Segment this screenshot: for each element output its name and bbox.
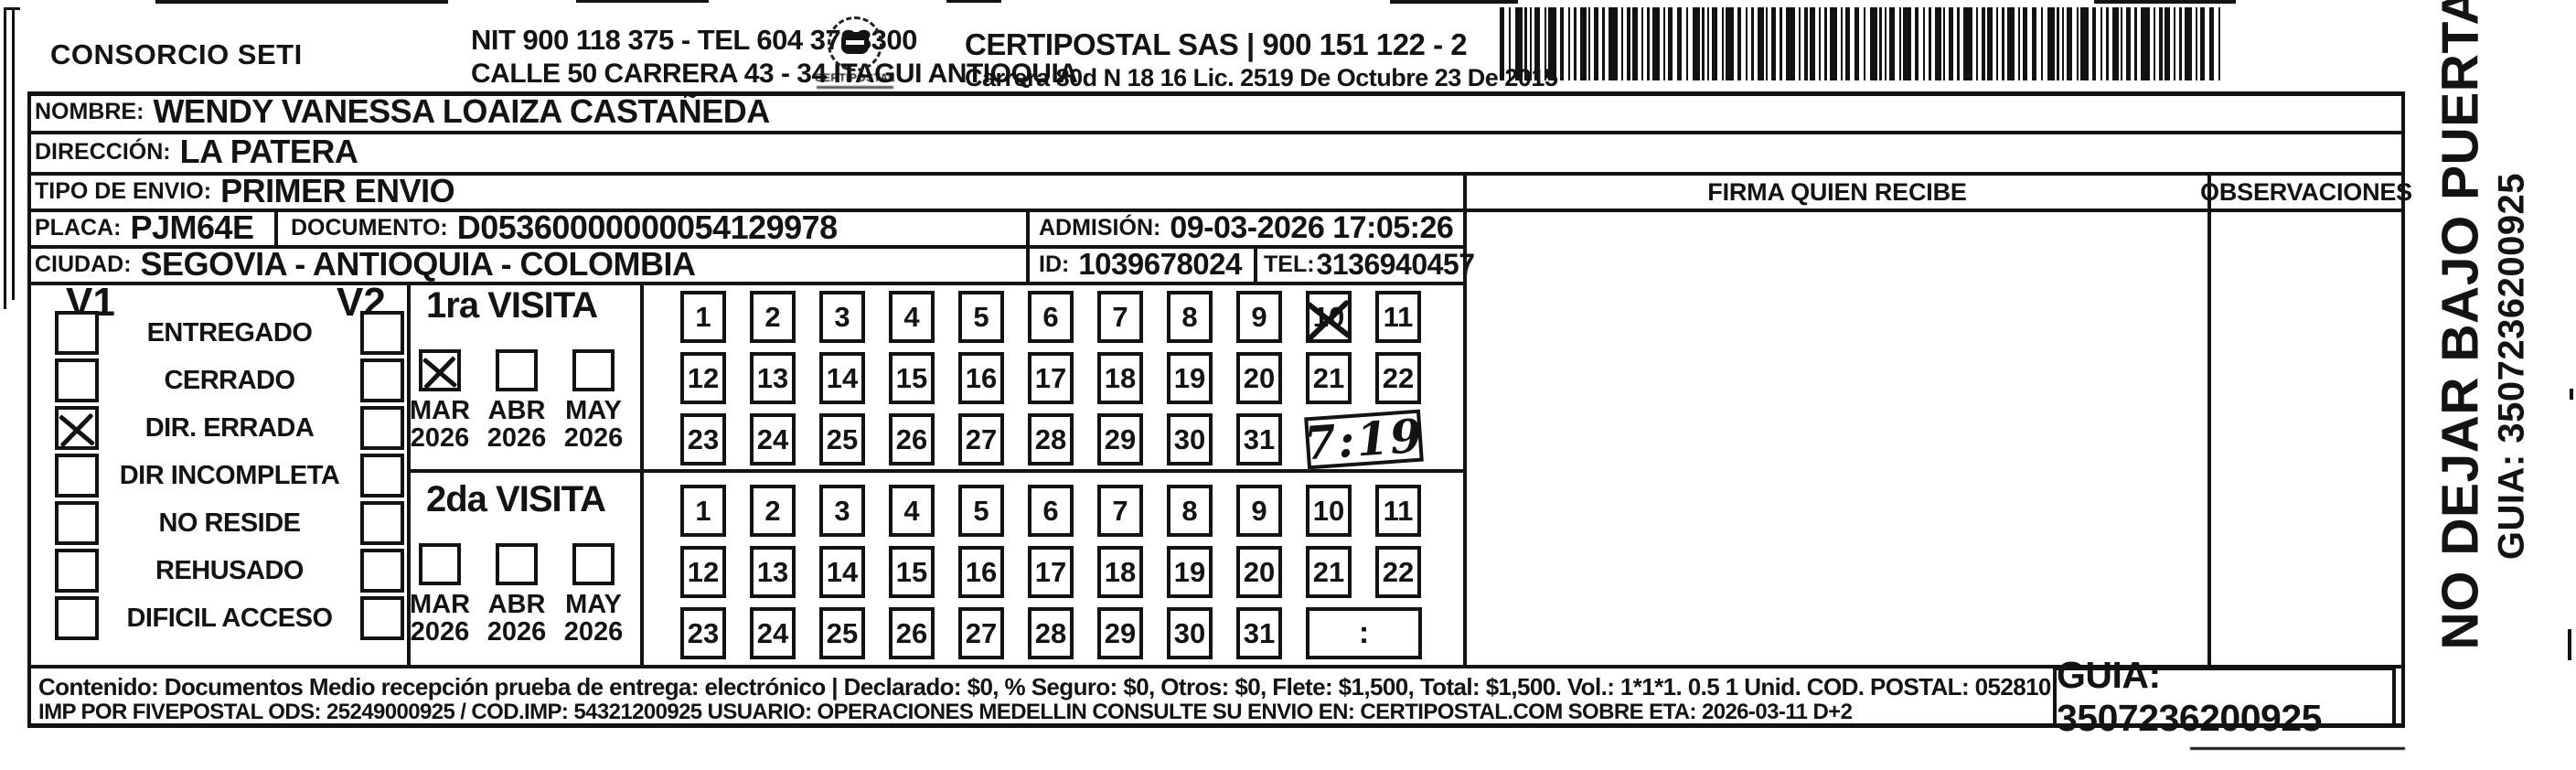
day-cell-1[interactable]: 1 xyxy=(680,485,726,537)
certipostal-logo-icon xyxy=(828,16,882,71)
month-year: 2026 xyxy=(487,424,547,453)
status-label: CERRADO xyxy=(99,366,360,396)
observaciones-column-header: OBSERVACIONES xyxy=(2211,176,2401,209)
day-cell-24[interactable]: 24 xyxy=(750,607,796,659)
day-cell-2[interactable]: 2 xyxy=(750,485,796,537)
day-cell-9[interactable]: 9 xyxy=(1236,291,1282,343)
day-row: 1234567891011 xyxy=(680,291,1422,343)
id-label: ID: xyxy=(1039,251,1069,278)
day-cell-3[interactable]: 3 xyxy=(819,291,865,343)
day-cell-25[interactable]: 25 xyxy=(819,413,865,465)
v2-checkbox[interactable] xyxy=(360,406,404,450)
day-cell-30[interactable]: 30 xyxy=(1167,607,1213,659)
day-cell-26[interactable]: 26 xyxy=(889,607,935,659)
day-cell-17[interactable]: 17 xyxy=(1028,352,1074,404)
divider xyxy=(27,131,2405,134)
day-cell-15[interactable]: 15 xyxy=(889,352,935,404)
scan-artifact xyxy=(155,0,448,4)
logo-caption-smudge xyxy=(817,86,893,89)
documento-cell: DOCUMENTO: D05360000000054129978 xyxy=(291,210,838,245)
month-checkbox[interactable] xyxy=(572,543,615,585)
visit-time-cell[interactable]: : xyxy=(1306,607,1422,659)
day-cell-31[interactable]: 31 xyxy=(1236,413,1282,465)
month-checkbox[interactable] xyxy=(496,543,538,585)
day-cell-21[interactable]: 21 xyxy=(1306,352,1352,404)
footer-content-line: Contenido: Documentos Medio recepción pr… xyxy=(38,673,2051,701)
v2-checkbox[interactable] xyxy=(360,454,404,497)
v2-checkbox[interactable] xyxy=(360,596,404,640)
divider xyxy=(27,665,2405,668)
visit2-day-grid: 1234567891011121314151617181920212223242… xyxy=(680,485,1422,659)
day-cell-10[interactable]: 10 xyxy=(1306,291,1352,343)
day-row: 1213141516171819202122 xyxy=(680,546,1422,598)
day-cell-13[interactable]: 13 xyxy=(750,546,796,598)
divider xyxy=(640,282,644,668)
day-cell-5[interactable]: 5 xyxy=(958,291,1004,343)
day-cell-13[interactable]: 13 xyxy=(750,352,796,404)
divider xyxy=(27,91,31,728)
v1-checkbox[interactable] xyxy=(55,501,99,545)
id-value: 1039678024 xyxy=(1078,247,1242,282)
day-cell-12[interactable]: 12 xyxy=(680,352,726,404)
firma-column-header: FIRMA QUIEN RECIBE xyxy=(1467,176,2207,209)
placa-cell: PLACA: PJM64E xyxy=(35,210,254,245)
v1-checkbox[interactable] xyxy=(55,358,99,402)
month-checkbox[interactable] xyxy=(419,543,461,585)
day-cell-7[interactable]: 7 xyxy=(1097,485,1143,537)
scan-artifact xyxy=(2094,0,2236,4)
divider xyxy=(1026,209,1030,285)
day-cell-15[interactable]: 15 xyxy=(889,546,935,598)
divider xyxy=(1254,245,1257,285)
divider xyxy=(274,209,278,249)
ciudad-label: CIUDAD: xyxy=(35,251,132,278)
guia-number-box: GUIA: 3507236200925 xyxy=(2053,667,2396,727)
day-cell-19[interactable]: 19 xyxy=(1167,352,1213,404)
day-cell-23[interactable]: 23 xyxy=(680,607,726,659)
day-cell-21[interactable]: 21 xyxy=(1306,546,1352,598)
day-cell-31[interactable]: 31 xyxy=(1236,607,1282,659)
status-row: REHUSADO xyxy=(55,549,404,593)
status-row: DIFICIL ACCESO xyxy=(55,596,404,640)
v2-checkbox[interactable] xyxy=(360,501,404,545)
day-cell-7[interactable]: 7 xyxy=(1097,291,1143,343)
month-label: MAY xyxy=(565,397,622,424)
firma-signature-area[interactable] xyxy=(1467,212,2207,665)
day-cell-25[interactable]: 25 xyxy=(819,607,865,659)
status-row: DIR INCOMPLETA xyxy=(55,454,404,497)
status-label: DIR INCOMPLETA xyxy=(99,461,360,491)
month-year: 2026 xyxy=(564,424,624,453)
month-option: MAR2026 xyxy=(401,349,478,453)
status-row: NO RESIDE xyxy=(55,501,404,545)
brand-address-line: Carrera 80d N 18 16 Lic. 2519 De Octubre… xyxy=(965,64,1557,92)
day-cell-30[interactable]: 30 xyxy=(1167,413,1213,465)
day-cell-22[interactable]: 22 xyxy=(1375,546,1421,598)
day-cell-11[interactable]: 11 xyxy=(1375,291,1421,343)
side-guia-number: GUIA: 3507236200925 xyxy=(2489,83,2535,650)
direccion-label: DIRECCIÓN: xyxy=(35,139,171,166)
day-cell-8[interactable]: 8 xyxy=(1167,485,1213,537)
month-label: MAR xyxy=(410,397,470,424)
admision-cell: ADMISIÓN: 09-03-2026 17:05:26 xyxy=(1039,210,1453,245)
scan-artifact xyxy=(4,7,6,309)
status-label: NO RESIDE xyxy=(99,508,360,539)
placa-label: PLACA: xyxy=(35,215,121,241)
day-cell-28[interactable]: 28 xyxy=(1028,413,1074,465)
scan-artifact xyxy=(576,0,709,3)
day-cell-8[interactable]: 8 xyxy=(1167,291,1213,343)
observaciones-area[interactable] xyxy=(2211,212,2401,665)
day-cell-12[interactable]: 12 xyxy=(680,546,726,598)
month-checkbox[interactable] xyxy=(496,349,538,391)
v2-checkbox[interactable] xyxy=(360,311,404,355)
day-cell-9[interactable]: 9 xyxy=(1236,485,1282,537)
day-cell-16[interactable]: 16 xyxy=(958,352,1004,404)
day-row: 232425262728293031: xyxy=(680,607,1422,659)
day-cell-3[interactable]: 3 xyxy=(819,485,865,537)
day-cell-29[interactable]: 29 xyxy=(1097,607,1143,659)
day-row: 1213141516171819202122 xyxy=(680,352,1422,404)
day-cell-18[interactable]: 18 xyxy=(1097,546,1143,598)
month-checkbox[interactable] xyxy=(572,349,615,391)
scan-artifact xyxy=(12,7,15,300)
day-cell-16[interactable]: 16 xyxy=(958,546,1004,598)
status-label: REHUSADO xyxy=(99,556,360,586)
documento-label: DOCUMENTO: xyxy=(291,215,448,241)
day-row: 1234567891011 xyxy=(680,485,1422,537)
tipo-envio-value: PRIMER ENVIO xyxy=(220,172,454,210)
v1-checkbox[interactable] xyxy=(55,596,99,640)
day-cell-29[interactable]: 29 xyxy=(1097,413,1143,465)
v1-checkbox[interactable] xyxy=(55,311,99,355)
visit-time-cell[interactable]: 7:19 xyxy=(1304,410,1424,470)
day-cell-2[interactable]: 2 xyxy=(750,291,796,343)
day-cell-17[interactable]: 17 xyxy=(1028,546,1074,598)
scan-artifact xyxy=(2570,389,2573,400)
month-option: MAY2026 xyxy=(555,543,632,647)
day-cell-11[interactable]: 11 xyxy=(1375,485,1421,537)
v2-checkbox[interactable] xyxy=(360,549,404,593)
scan-artifact xyxy=(2190,747,2405,750)
v1-checkbox[interactable] xyxy=(55,549,99,593)
scan-artifact xyxy=(2568,629,2571,660)
day-cell-22[interactable]: 22 xyxy=(1375,352,1421,404)
month-label: ABR xyxy=(488,397,546,424)
direccion-value: LA PATERA xyxy=(180,133,358,171)
month-option: ABR2026 xyxy=(478,349,555,453)
day-cell-18[interactable]: 18 xyxy=(1097,352,1143,404)
direccion-row: DIRECCIÓN: LA PATERA xyxy=(35,134,358,170)
day-row: 2324252627282930317:19 xyxy=(680,413,1422,465)
month-year: 2026 xyxy=(487,618,547,647)
status-panel: ENTREGADOCERRADODIR. ERRADADIR INCOMPLET… xyxy=(55,311,404,640)
barcode xyxy=(1500,7,2239,80)
day-cell-6[interactable]: 6 xyxy=(1028,485,1074,537)
delivery-guide-scan: CONSORCIO SETI NIT 900 118 375 - TEL 604… xyxy=(0,0,2576,770)
day-cell-20[interactable]: 20 xyxy=(1236,546,1282,598)
consignor-name: CONSORCIO SETI xyxy=(50,38,303,71)
month-year: 2026 xyxy=(564,618,624,647)
ciudad-cell: CIUDAD: SEGOVIA - ANTIOQUIA - COLOMBIA xyxy=(35,247,696,282)
ciudad-value: SEGOVIA - ANTIOQUIA - COLOMBIA xyxy=(141,245,696,283)
day-cell-23[interactable]: 23 xyxy=(680,413,726,465)
visit2-title: 2da VISITA xyxy=(426,479,605,520)
placa-value: PJM64E xyxy=(130,209,253,247)
tipo-envio-row: TIPO DE ENVIO: PRIMER ENVIO xyxy=(35,174,454,209)
admision-label: ADMISIÓN: xyxy=(1039,215,1160,241)
month-option: ABR2026 xyxy=(478,543,555,647)
month-label: MAY xyxy=(565,591,622,618)
footer-imp-line: IMP POR FIVEPOSTAL ODS: 25249000925 / CO… xyxy=(38,700,1852,725)
documento-value: D05360000000054129978 xyxy=(457,209,838,247)
day-cell-5[interactable]: 5 xyxy=(958,485,1004,537)
status-label: DIFICIL ACCESO xyxy=(99,604,360,634)
admision-value: 09-03-2026 17:05:26 xyxy=(1170,210,1453,246)
brand-name-line: CERTIPOSTAL SAS | 900 151 122 - 2 xyxy=(965,27,1467,62)
tel-cell: TEL: 3136940457 xyxy=(1264,247,1475,282)
status-row: ENTREGADO xyxy=(55,311,404,355)
month-year: 2026 xyxy=(411,618,470,647)
month-label: MAR xyxy=(410,591,470,618)
v1-checkbox[interactable] xyxy=(55,406,99,450)
day-cell-27[interactable]: 27 xyxy=(958,413,1004,465)
nombre-row: NOMBRE: WENDY VANESSA LOAIZA CASTAÑEDA xyxy=(35,93,770,130)
status-row: CERRADO xyxy=(55,358,404,402)
month-option: MAR2026 xyxy=(401,543,478,647)
day-cell-28[interactable]: 28 xyxy=(1028,607,1074,659)
certipostal-logo: CERTIPOSTAL xyxy=(805,16,905,89)
status-label: DIR. ERRADA xyxy=(99,413,360,444)
certipostal-logo-caption: CERTIPOSTAL xyxy=(805,71,905,84)
no-dejar-warning: NO DEJAR BAJO PUERTA xyxy=(2432,83,2489,650)
day-cell-27[interactable]: 27 xyxy=(958,607,1004,659)
month-label: ABR xyxy=(488,591,546,618)
day-cell-4[interactable]: 4 xyxy=(889,485,935,537)
day-cell-10[interactable]: 10 xyxy=(1306,485,1352,537)
nombre-label: NOMBRE: xyxy=(35,99,144,125)
id-cell: ID: 1039678024 xyxy=(1039,247,1242,282)
status-row: DIR. ERRADA xyxy=(55,406,404,450)
day-cell-1[interactable]: 1 xyxy=(680,291,726,343)
scan-artifact xyxy=(946,0,1001,3)
day-cell-24[interactable]: 24 xyxy=(750,413,796,465)
side-note: NO DEJAR BAJO PUERTA GUIA: 3507236200925 xyxy=(2432,83,2547,650)
v2-checkbox[interactable] xyxy=(360,358,404,402)
visit2-months: MAR2026ABR2026MAY2026 xyxy=(401,543,632,647)
visit1-day-grid: 1234567891011121314151617181920212223242… xyxy=(680,291,1422,465)
scan-artifact xyxy=(4,7,20,10)
day-cell-6[interactable]: 6 xyxy=(1028,291,1074,343)
day-cell-20[interactable]: 20 xyxy=(1236,352,1282,404)
day-cell-14[interactable]: 14 xyxy=(819,352,865,404)
tel-value: 3136940457 xyxy=(1317,248,1475,282)
month-year: 2026 xyxy=(411,424,470,453)
status-label: ENTREGADO xyxy=(99,318,360,348)
tel-label: TEL: xyxy=(1264,251,1315,278)
tipo-envio-label: TIPO DE ENVIO: xyxy=(35,178,211,205)
v1-checkbox[interactable] xyxy=(55,454,99,497)
day-cell-26[interactable]: 26 xyxy=(889,413,935,465)
month-checkbox[interactable] xyxy=(419,349,461,391)
day-cell-4[interactable]: 4 xyxy=(889,291,935,343)
scan-artifact xyxy=(1390,0,1518,4)
day-cell-19[interactable]: 19 xyxy=(1167,546,1213,598)
visit1-title: 1ra VISITA xyxy=(426,285,597,326)
visit1-months: MAR2026ABR2026MAY2026 xyxy=(401,349,632,453)
month-option: MAY2026 xyxy=(555,349,632,453)
day-cell-14[interactable]: 14 xyxy=(819,546,865,598)
nombre-value: WENDY VANESSA LOAIZA CASTAÑEDA xyxy=(153,92,769,131)
